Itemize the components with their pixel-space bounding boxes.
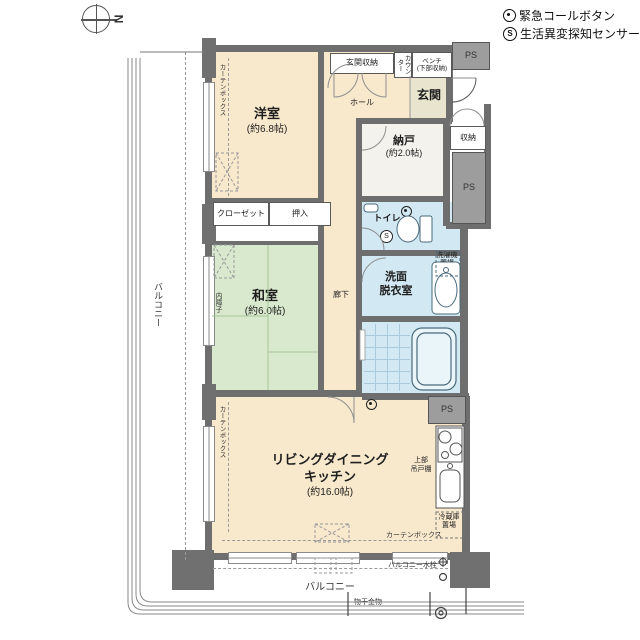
laundry-bar-label: 物干金物 [354, 597, 382, 607]
legend-sensor: S 生活異変探知センサー [503, 25, 640, 42]
wall [362, 316, 462, 322]
pillar [202, 38, 216, 78]
wall [318, 198, 324, 397]
wall [443, 122, 450, 226]
entrance-storage-label: 玄関収納 [346, 59, 378, 68]
wall [362, 118, 452, 124]
entrance-storage-box: 玄関収納 [330, 53, 394, 74]
compass: N [82, 5, 123, 33]
sensor-icon: S [503, 27, 517, 41]
entrance-label: 玄関 [408, 88, 450, 104]
pillar [202, 384, 216, 420]
hall-label: ホール [340, 98, 384, 108]
floor-plan: N 緊急コールボタン S 生活異変探知センサー [0, 0, 640, 640]
oshiire-label: 押入 [292, 210, 308, 219]
compass-north-label: N [111, 15, 125, 24]
emergency-call-icon [401, 206, 412, 217]
washer-place-label: 洗濯機 置場 [434, 252, 460, 269]
curtain-box-label: カーテンボックス [216, 64, 226, 116]
balcony-faucet-label: バルコニー水栓 [388, 560, 437, 570]
balcony-boundary-dashed [185, 52, 186, 560]
wall [212, 241, 320, 245]
wall [356, 118, 362, 397]
wall [362, 196, 448, 202]
cupboard-label: 上部 吊戸棚 [406, 456, 436, 474]
corridor-floor [324, 118, 356, 390]
ldk-label: リビングダイニング キッチン (約16.0帖) [235, 452, 425, 499]
japanese-room-label: 和室 (約6.0帖) [222, 288, 308, 318]
storage-label: 収納 [460, 134, 476, 143]
compass-icon [82, 5, 110, 33]
emergency-call-icon [430, 368, 441, 379]
curtain-box-label: カーテンボックス [386, 530, 442, 540]
pillar [172, 550, 214, 590]
curtain-box-line [228, 402, 229, 532]
emergency-call-icon [366, 399, 377, 410]
western-room-label: 洋室 (約6.8帖) [222, 106, 312, 136]
counter-box: カウンター [394, 52, 412, 78]
balcony-left-label: バルコニー [152, 282, 165, 327]
window [203, 426, 215, 522]
storage-box: 収納 [450, 126, 486, 150]
legend-call-label: 緊急コールボタン [519, 7, 615, 24]
sensor-icon: S [380, 230, 393, 243]
corridor-label: 廊下 [328, 290, 354, 300]
washroom-label: 洗面 脱衣室 [368, 270, 424, 299]
bench-label-1: ベンチ [422, 58, 442, 65]
bathroom-label: 浴室 [428, 340, 441, 360]
counter-label: カウンター [396, 53, 410, 77]
storeroom-label: 納戸 (約2.0帖) [368, 134, 440, 160]
curtain-box-label: カーテンボックス [216, 406, 226, 458]
pipe-space-top: PS [452, 42, 490, 70]
window [228, 552, 292, 564]
legend-call-button: 緊急コールボタン [503, 7, 615, 24]
legend-sensor-label: 生活異変探知センサー [520, 25, 640, 42]
wall [318, 52, 324, 205]
ps-label: PS [441, 405, 453, 415]
window [296, 552, 360, 564]
fridge-place-label: 冷蔵庫 置場 [435, 514, 463, 531]
wall [460, 225, 468, 400]
pipe-space-right: PS [452, 152, 486, 224]
inner-shoji-label: 内障子 [213, 292, 223, 313]
bathroom-tiles [364, 324, 410, 391]
wall [205, 45, 452, 52]
pillar [450, 552, 490, 588]
wall [212, 390, 362, 397]
oshiire-box: 押入 [269, 202, 331, 226]
curtain-box-line [222, 540, 432, 541]
bench-box: ベンチ (下部収納) [412, 52, 452, 78]
ps-label: PS [463, 183, 475, 193]
balcony-bottom-label: バルコニー [285, 578, 375, 593]
emergency-call-icon [503, 9, 516, 22]
window [203, 82, 215, 172]
closet-label: クローゼット [217, 210, 265, 219]
pipe-space-kitchen: PS [428, 396, 466, 424]
closet-box: クローゼット [213, 202, 269, 226]
bench-label-2: (下部収納) [417, 65, 447, 72]
ps-label: PS [465, 51, 477, 61]
